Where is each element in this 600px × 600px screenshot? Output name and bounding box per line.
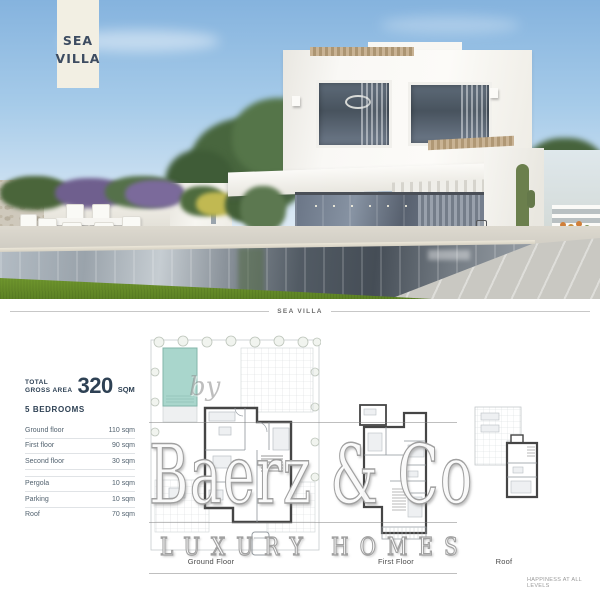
section-divider: SEA VILLA: [10, 308, 590, 315]
dining-table: [46, 218, 132, 225]
area-info-panel: TOTAL GROSS AREA 320 SQM 5 BEDROOMS Grou…: [25, 376, 135, 522]
wall-lamp: [292, 96, 300, 106]
banner-line1: SEA: [63, 33, 93, 48]
row-value: 70 sqm: [112, 511, 135, 518]
villa-photo: SEA VILLA: [0, 0, 600, 299]
sea-villa-banner: SEA VILLA: [57, 0, 99, 88]
watermark-rule-bottom: [149, 573, 457, 574]
total-unit: SQM: [118, 385, 135, 394]
table-row: Parking 10 sqm: [25, 492, 135, 508]
table-row: First floor 90 sqm: [25, 439, 135, 455]
table-row: Pergola 10 sqm: [25, 477, 135, 493]
roof-label: Roof: [496, 557, 513, 566]
floor-areas-table: Ground floor 110 sqm First floor 90 sqm …: [25, 423, 135, 470]
ground-floor-plan: [149, 332, 321, 558]
table-row: Ground floor 110 sqm: [25, 423, 135, 439]
first-floor-plan: [356, 401, 432, 543]
plan-pool: [163, 348, 197, 406]
wall-lamp: [490, 88, 498, 98]
row-value: 10 sqm: [112, 480, 135, 487]
row-value: 110 sqm: [109, 427, 135, 434]
row-label: Second floor: [25, 458, 64, 465]
extra-areas-table: Pergola 10 sqm Parking 10 sqm Roof 70 sq…: [25, 476, 135, 523]
cloud: [380, 16, 520, 34]
ground-floor-label: Ground Floor: [188, 557, 235, 566]
plan-pool-deck: [163, 406, 197, 422]
roof-plan: [471, 403, 543, 503]
upper-window-left: [316, 80, 392, 148]
plan-terrace-grid: [241, 348, 313, 412]
brochure-page: SEA VILLA SEA VILLA TOTAL GROSS AREA 320…: [0, 0, 600, 600]
roof-pergola-slats: [310, 47, 414, 56]
total-gross-area: TOTAL GROSS AREA 320 SQM: [25, 376, 135, 395]
total-value: 320: [77, 376, 112, 395]
section-title: SEA VILLA: [277, 308, 322, 315]
banner-line2: VILLA: [56, 51, 101, 66]
row-label: Parking: [25, 496, 49, 503]
tagline-note: HAPPINESS AT ALL LEVELS: [527, 577, 600, 589]
bougainvillea: [125, 180, 185, 208]
plan-stair-head: [511, 435, 523, 443]
total-label: TOTAL GROSS AREA: [25, 379, 72, 395]
curtain: [461, 85, 487, 143]
plan-car: [252, 532, 269, 555]
plan-furniture: [364, 409, 376, 415]
row-value: 90 sqm: [112, 442, 135, 449]
upper-window-right: [408, 82, 492, 146]
lounger-reflection: [428, 250, 470, 260]
bedrooms-label: 5 BEDROOMS: [25, 405, 135, 414]
row-value: 10 sqm: [112, 496, 135, 503]
cactus-arm: [527, 190, 535, 208]
divider-line-left: [10, 311, 269, 312]
row-value: 30 sqm: [112, 458, 135, 465]
first-floor-label: First Floor: [378, 557, 414, 566]
row-label: Ground floor: [25, 427, 64, 434]
ceiling-lights: [315, 205, 435, 207]
row-label: Pergola: [25, 480, 49, 487]
total-label-line2: GROSS AREA: [25, 387, 72, 395]
row-label: Roof: [25, 511, 40, 518]
table-row: Roof 70 sqm: [25, 508, 135, 523]
row-label: First floor: [25, 442, 54, 449]
table-row: Second floor 30 sqm: [25, 454, 135, 470]
divider-line-right: [331, 311, 590, 312]
total-label-line1: TOTAL: [25, 379, 72, 387]
curtain: [361, 83, 387, 145]
